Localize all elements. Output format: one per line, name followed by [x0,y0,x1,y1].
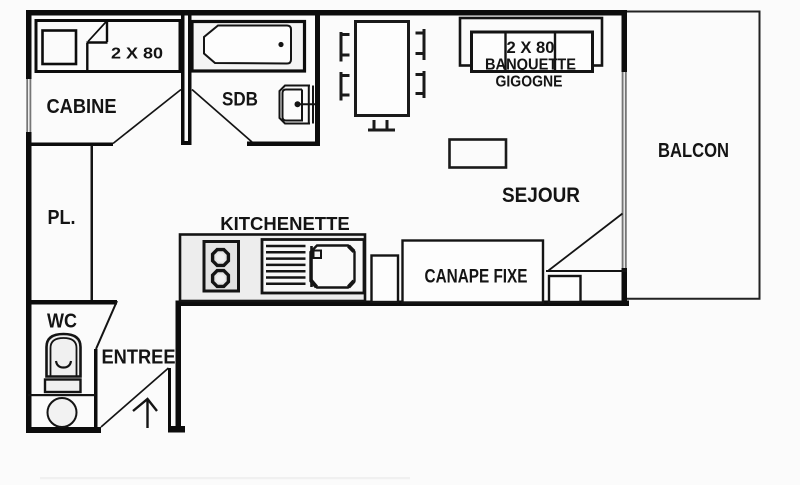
svg-text:2 X 80: 2 X 80 [111,46,163,63]
svg-text:SEJOUR: SEJOUR [502,184,580,207]
svg-text:WC: WC [47,311,77,333]
svg-text:2 X 80: 2 X 80 [507,38,555,57]
svg-text:SDB: SDB [222,90,258,111]
svg-text:CABINE: CABINE [47,96,117,118]
svg-text:BALCON: BALCON [658,140,729,162]
svg-text:GIGOGNE: GIGOGNE [496,73,563,90]
svg-text:KITCHENETTE: KITCHENETTE [220,214,350,234]
svg-text:ENTREE: ENTREE [102,347,176,369]
svg-text:CANAPE FIXE: CANAPE FIXE [425,267,528,288]
svg-text:BANQUETTE: BANQUETTE [485,57,576,74]
svg-text:PL.: PL. [48,207,76,229]
